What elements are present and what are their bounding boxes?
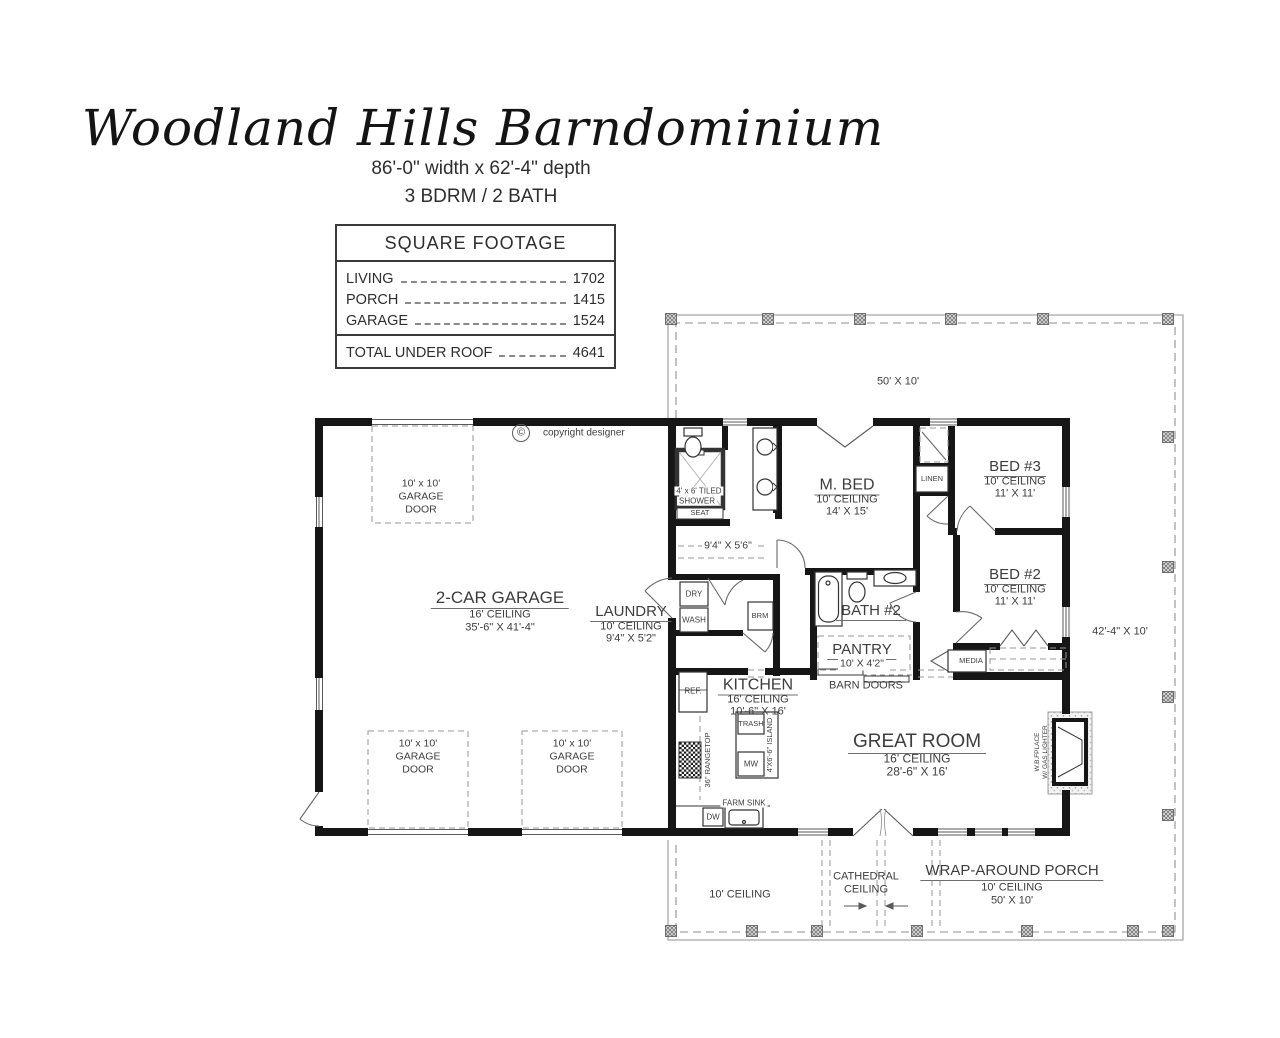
- cathedral-ceiling-label: CEILING: [844, 884, 888, 897]
- room-name-pantry: PANTRY: [827, 642, 896, 658]
- room-name-wrap-porch: WRAP-AROUND PORCH: [920, 863, 1103, 879]
- fireplace-label: W.B.FPLACE W/ GAS LIGHTER: [1034, 725, 1050, 778]
- pantry-dims: 10' X 4'2": [838, 658, 886, 671]
- media-label: MEDIA: [959, 657, 983, 666]
- shower-seat-label: SEAT: [690, 509, 709, 518]
- master-closet-dims: 9'4" X 5'6": [702, 540, 754, 553]
- right-porch-dims: 42'-4" X 10': [1092, 626, 1148, 639]
- double-vanity: [753, 428, 777, 510]
- room-name-kitchen: KITCHEN: [718, 677, 798, 694]
- great-room-dims: 28'-6" X 16': [887, 766, 948, 779]
- master-bed-dims: 14' X 15': [826, 506, 868, 519]
- floor-plan-page: Woodland Hills Barndominium 86'-0" width…: [0, 0, 1280, 1038]
- room-name-garage: 2-CAR GARAGE: [431, 589, 569, 607]
- rangetop: [679, 742, 701, 778]
- garage-door-label: 10' x 10' GARAGE DOOR: [550, 738, 595, 777]
- bed3-dims: 11' X 11': [995, 488, 1036, 501]
- barn-doors-label: BARN DOORS: [829, 680, 903, 693]
- room-name-bed3: BED #3: [984, 459, 1046, 475]
- washer-label: WASH: [682, 616, 706, 625]
- toilet: [684, 428, 702, 457]
- kitchen-dims: 10'-6" X 16': [730, 706, 786, 719]
- dryer-label: DRY: [686, 590, 703, 599]
- room-name-bath2: BATH #2: [836, 603, 906, 619]
- laundry-dims: 9'4" X 5'2": [606, 633, 656, 646]
- broom-label: BRM: [752, 612, 769, 621]
- linen-label: LINEN: [921, 475, 943, 484]
- farm-sink-label: FARM SINK: [720, 799, 767, 808]
- copyright-text: copyright designer: [543, 427, 625, 440]
- floor-plan-drawing: [0, 0, 1280, 1038]
- garage-door-label: 10' x 10' GARAGE DOOR: [396, 738, 441, 777]
- copyright-symbol: ©: [517, 427, 525, 440]
- dishwasher-label: DW: [706, 813, 719, 822]
- room-name-bed2: BED #2: [984, 567, 1046, 583]
- room-name-master-bed: M. BED: [814, 477, 879, 494]
- shower-label: SHOWER: [677, 497, 717, 506]
- farm-sink: [725, 806, 763, 828]
- wrap-porch-ceiling: 10' CEILING: [981, 882, 1042, 895]
- rangetop-label: 36" RANGETOP: [704, 732, 713, 787]
- island-label: 4'X6'-6" ISLAND: [766, 718, 775, 773]
- room-name-great-room: GREAT ROOM: [848, 732, 986, 752]
- bath2-sink: [874, 570, 916, 586]
- garage-door-label: 10' x 10' GARAGE DOOR: [399, 478, 444, 517]
- wrap-porch-dims: 50' X 10': [991, 895, 1033, 908]
- microwave-label: MW: [744, 760, 758, 769]
- fireplace: [1048, 704, 1092, 800]
- toilet: [847, 572, 867, 602]
- garage-dims: 35'-6" X 41'-4": [465, 622, 535, 635]
- trash-label: TRASH: [738, 720, 763, 729]
- bed2-dims: 11' X 11': [995, 596, 1036, 609]
- garage-ceiling: 16' CEILING: [469, 609, 530, 622]
- refrigerator-label: REF.: [684, 687, 701, 696]
- top-porch-dims: 50' X 10': [877, 376, 919, 389]
- shower-label: 4' x 6' TILED: [674, 487, 723, 496]
- cathedral-arrows: [844, 903, 908, 909]
- bottom-porch-ceiling: 10' CEILING: [709, 889, 770, 902]
- room-name-laundry: LAUNDRY: [590, 604, 671, 620]
- cathedral-ceiling-label: CATHEDRAL: [833, 871, 899, 884]
